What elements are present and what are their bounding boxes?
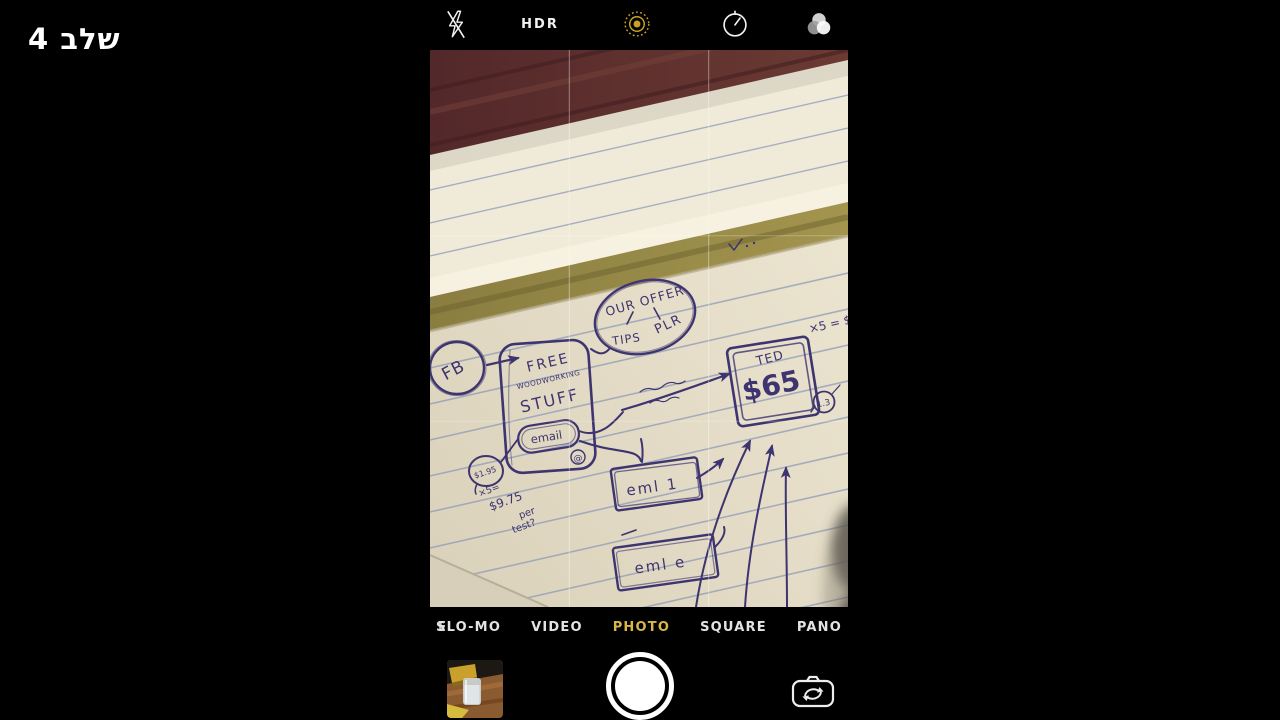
filters-button[interactable] <box>799 4 839 44</box>
overlay-caption: שלב 4 <box>28 22 121 56</box>
flash-button[interactable] <box>436 4 476 44</box>
camera-mode-selector: SLO-MO VIDEO PHOTO SQUARE PANO <box>430 620 848 635</box>
flip-camera-icon <box>790 672 836 708</box>
timer-button[interactable] <box>715 4 755 44</box>
filters-icon <box>799 4 839 44</box>
live-photo-icon <box>617 4 657 44</box>
thumbnail-photo <box>447 660 503 718</box>
live-photo-button[interactable] <box>617 4 657 44</box>
camera-viewfinder[interactable]: FB FREE WOODWORKING STUFF email @ OUR OF… <box>430 50 848 607</box>
flip-camera-button[interactable] <box>789 671 837 709</box>
flash-off-icon <box>436 4 476 44</box>
mode-slo-mo[interactable]: SLO-MO <box>436 620 501 635</box>
mode-video[interactable]: VIDEO <box>531 620 583 635</box>
shutter-button[interactable] <box>606 652 674 720</box>
viewfinder-scene: FB FREE WOODWORKING STUFF email @ OUR OF… <box>430 50 848 607</box>
hdr-label: HDR <box>521 17 559 32</box>
mode-square[interactable]: SQUARE <box>700 620 767 635</box>
camera-roll-thumbnail[interactable] <box>447 660 503 718</box>
hdr-button[interactable]: HDR <box>512 4 568 44</box>
timer-icon <box>715 4 755 44</box>
svg-text:@: @ <box>574 454 583 464</box>
shutter-inner-disc <box>615 661 665 711</box>
mode-photo[interactable]: PHOTO <box>613 620 670 635</box>
video-frame: שלב 4 HDR <box>0 0 1280 720</box>
mode-pano[interactable]: PANO <box>797 620 842 635</box>
